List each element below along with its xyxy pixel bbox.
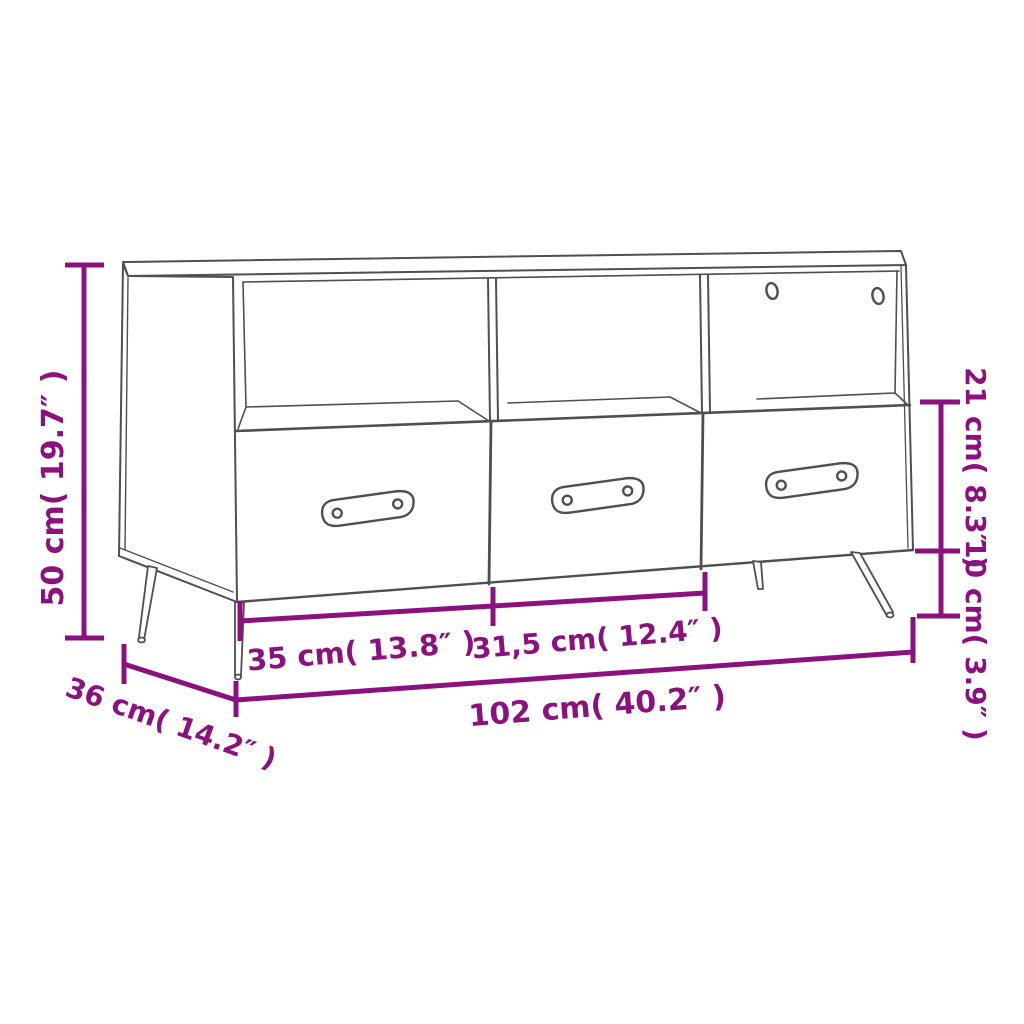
cubby-left-inner-wall xyxy=(243,282,246,407)
cubby-divider-1-right xyxy=(496,279,498,420)
diagram-canvas: 50 cm( 19.7″ ) 21 cm( 8.3″ ) 10 cm( 3.9″… xyxy=(0,0,1024,1024)
cubby-right-inner-wall xyxy=(895,271,897,393)
leg-left-front-foot xyxy=(235,675,241,680)
product-dimension-diagram: 50 cm( 19.7″ ) 21 cm( 8.3″ ) 10 cm( 3.9″… xyxy=(0,0,1024,1024)
cubby2-back-floor-joint xyxy=(508,397,670,403)
leg-right-front xyxy=(851,552,893,616)
cubby1-back-floor-joint xyxy=(246,401,458,407)
drawer3-handle xyxy=(765,462,859,499)
cubby-divider-1-left xyxy=(488,279,490,421)
drawer1-width-label: 35 cm( 13.8″ ) xyxy=(246,625,477,678)
cable-hole-left xyxy=(765,282,779,300)
cabinet-bottom-edge xyxy=(237,550,913,602)
cubby1-floor-right-edge xyxy=(458,401,489,421)
cubby-divider-2-right xyxy=(708,275,710,412)
leg-left-rear-foot xyxy=(138,638,145,643)
drawer-section-top-edge xyxy=(236,405,910,431)
leg-left-rear xyxy=(139,566,157,640)
total-width-label: 102 cm( 40.2″ ) xyxy=(467,679,727,734)
leg-height-label: 10 cm( 3.9″ ) xyxy=(959,539,992,741)
drawer2-handle xyxy=(551,477,645,514)
drawer2-width-label: 31,5 cm( 12.4″ ) xyxy=(471,612,724,666)
height-label: 50 cm( 19.7″ ) xyxy=(36,370,71,607)
drawer1-handle xyxy=(321,490,415,527)
leg-right-front-foot xyxy=(887,613,894,618)
drawer1-width-line xyxy=(240,606,493,621)
leg-middle-rear xyxy=(753,561,763,589)
depth-label: 36 cm( 14.2″ ) xyxy=(61,671,281,776)
cubby2-floor-right-edge xyxy=(670,397,701,413)
drawer-gap-1 xyxy=(489,421,491,584)
cubby1-floor-left-edge xyxy=(238,407,246,429)
cubby3-back-floor-joint xyxy=(757,393,895,399)
cable-hole-right xyxy=(871,287,885,305)
cubby-divider-2-left xyxy=(700,275,702,413)
drawer-gap-2 xyxy=(701,413,703,569)
drawer2-width-line xyxy=(493,593,705,606)
cabinet-left-panel xyxy=(119,264,237,602)
